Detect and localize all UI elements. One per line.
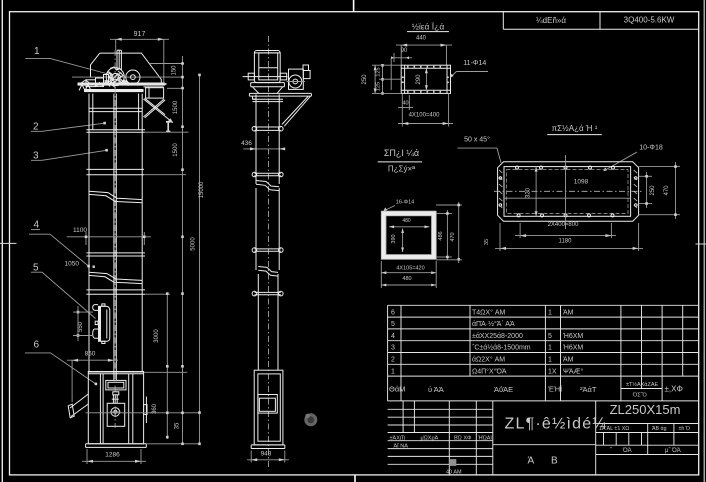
svg-text:΅C±ά½ά8-1500mm: ΅C±ά½ά8-1500mm xyxy=(472,344,531,352)
svg-text:5: 5 xyxy=(391,321,395,328)
svg-text:Ά: Ά xyxy=(528,456,535,467)
svg-text:±,XΦ: ±,XΦ xyxy=(665,385,683,394)
svg-text:40 ΑΜ: 40 ΑΜ xyxy=(446,469,462,475)
svg-text:390: 390 xyxy=(391,234,397,243)
svg-text:948: 948 xyxy=(261,451,272,458)
svg-text:μΏΧρΆ: μΏΧρΆ xyxy=(421,436,439,442)
svg-text:Β: Β xyxy=(551,456,558,467)
svg-text:290: 290 xyxy=(416,74,422,85)
svg-text:5: 5 xyxy=(548,333,552,340)
svg-text:1500: 1500 xyxy=(173,100,179,114)
svg-text:11-Φ14: 11-Φ14 xyxy=(463,60,486,67)
svg-text:917: 917 xyxy=(134,31,146,38)
svg-text:±Τ½ΑXάΖΑΕ: ±Τ½ΑXάΖΑΕ xyxy=(626,381,659,388)
svg-text:320: 320 xyxy=(526,187,532,198)
svg-text:35: 35 xyxy=(175,422,181,429)
svg-text:35: 35 xyxy=(484,239,490,245)
svg-text:3: 3 xyxy=(391,345,395,352)
svg-text:125: 125 xyxy=(376,67,382,76)
svg-text:Ή6ΧΜ: Ή6ΧΜ xyxy=(562,345,583,352)
svg-text:470: 470 xyxy=(450,232,456,241)
svg-text:²ΆάΤ: ²ΆάΤ xyxy=(580,385,597,394)
svg-text:860: 860 xyxy=(85,351,96,358)
svg-text:1: 1 xyxy=(548,345,552,352)
svg-text:1Ά ΆL ±1 ΧΩ: 1Ά ΆL ±1 ΧΩ xyxy=(599,426,629,432)
svg-text:½ϊεά Ϊ¿ά: ½ϊεά Ϊ¿ά xyxy=(412,22,445,32)
svg-text:Π¿Σý×ª: Π¿Σý×ª xyxy=(388,165,415,174)
svg-text:5000: 5000 xyxy=(191,237,197,251)
svg-text:±ΆΧ(Ϊ): ±ΆΧ(Ϊ) xyxy=(390,435,406,442)
svg-text:1100: 1100 xyxy=(73,227,87,234)
svg-text:1: 1 xyxy=(34,46,40,57)
svg-text:486: 486 xyxy=(438,231,444,240)
svg-text:6: 6 xyxy=(391,309,395,316)
svg-text:ZL¶·ê½ìdé¼: ZL¶·ê½ìdé¼ xyxy=(505,416,607,433)
svg-text:άΠΆ·½°Ά΄ ΑΆ: άΠΆ·½°Ά΄ ΑΆ xyxy=(472,320,515,328)
svg-text:1500: 1500 xyxy=(173,143,179,157)
svg-text:480: 480 xyxy=(402,276,411,282)
svg-text:3000: 3000 xyxy=(154,329,160,343)
svg-text:40: 40 xyxy=(402,101,408,107)
svg-text:436: 436 xyxy=(241,140,252,147)
svg-text:άΩ2X° ΑΜ: άΩ2X° ΑΜ xyxy=(472,356,505,364)
svg-text:470: 470 xyxy=(664,185,670,196)
svg-text:πΣ½Α¿ά Ή ¹: πΣ½Α¿ά Ή ¹ xyxy=(552,124,598,133)
svg-text:Ή6ΧΜ: Ή6ΧΜ xyxy=(562,333,583,340)
svg-text:360: 360 xyxy=(152,403,158,414)
svg-text:ΣΠ¿Ι ¼ά: ΣΠ¿Ι ¼ά xyxy=(384,148,419,158)
svg-text:2: 2 xyxy=(391,357,395,364)
svg-text:ΆΒ άg: ΆΒ άg xyxy=(652,425,667,432)
svg-text:1286: 1286 xyxy=(105,452,120,459)
svg-text:1050: 1050 xyxy=(65,261,80,268)
svg-text:1180: 1180 xyxy=(559,239,573,245)
svg-text:ΆΜ: ΆΜ xyxy=(563,357,574,364)
svg-text:16-Φ14: 16-Φ14 xyxy=(396,200,414,206)
svg-text:2Χ400=800: 2Χ400=800 xyxy=(548,222,580,228)
svg-text:1X: 1X xyxy=(548,368,557,375)
svg-text:4Χ100=400: 4Χ100=400 xyxy=(409,113,441,119)
svg-text:ΨΆÆ°: ΨΆÆ° xyxy=(563,367,584,375)
svg-text:15000: 15000 xyxy=(199,181,205,198)
svg-text:ΒΏ XΦ: ΒΏ XΦ xyxy=(454,436,472,442)
svg-text:1098: 1098 xyxy=(574,179,589,186)
svg-text:±άXX25ά8-2000: ±άXX25ά8-2000 xyxy=(472,332,523,340)
svg-text:1: 1 xyxy=(548,309,552,316)
svg-text:1: 1 xyxy=(391,368,395,375)
svg-text:250: 250 xyxy=(362,74,368,85)
svg-text:90: 90 xyxy=(401,48,408,54)
svg-text:150: 150 xyxy=(172,65,178,76)
svg-text:ΉΏΑΙ: ΉΏΑΙ xyxy=(477,436,492,442)
svg-text:4Χ105=420: 4Χ105=420 xyxy=(396,266,424,272)
svg-text:Τ4ΩX° ΑΜ: Τ4ΩX° ΑΜ xyxy=(472,308,505,316)
svg-text:10-Φ18: 10-Φ18 xyxy=(639,145,663,152)
svg-text:¼dΕñ»ά: ¼dΕñ»ά xyxy=(536,16,566,25)
svg-text:125: 125 xyxy=(376,82,382,91)
svg-text:±h Ό: ±h Ό xyxy=(679,426,690,432)
svg-text:250: 250 xyxy=(650,185,656,196)
svg-text:": " xyxy=(610,447,612,453)
svg-text:4: 4 xyxy=(34,220,40,231)
svg-text:1: 1 xyxy=(548,357,552,364)
svg-text:50 x 45°: 50 x 45° xyxy=(464,136,490,144)
svg-text:ZL250X15m: ZL250X15m xyxy=(610,402,681,417)
svg-text:6: 6 xyxy=(34,339,40,350)
svg-text:3Q400-5.6KW: 3Q400-5.6KW xyxy=(624,16,675,25)
svg-text:ύ ΆΆ: ύ ΆΆ xyxy=(428,385,444,394)
svg-text:4: 4 xyxy=(391,333,395,340)
svg-text:ΆΜ: ΆΜ xyxy=(563,309,574,316)
svg-text:Ω4Π°X°ΌΆ: Ω4Π°X°ΌΆ xyxy=(472,367,507,375)
svg-text:ΌΣ΅Ό: ΌΣ΅Ό xyxy=(632,392,647,399)
svg-text:550: 550 xyxy=(78,321,84,332)
svg-text:ΆΪ ΝΑ: ΆΪ ΝΑ xyxy=(394,442,409,449)
svg-text:μ΅ ΌΆ: μ΅ ΌΆ xyxy=(665,447,681,454)
svg-text:ΘάΜ: ΘάΜ xyxy=(389,385,405,394)
svg-text:440: 440 xyxy=(416,36,427,42)
svg-text:ΆΰΆΕ: ΆΰΆΕ xyxy=(494,385,513,394)
svg-text:480: 480 xyxy=(402,218,411,224)
svg-text:ΈΉΪ: ΈΉΪ xyxy=(547,385,563,394)
svg-text:ΌΆ: ΌΆ xyxy=(622,448,632,454)
